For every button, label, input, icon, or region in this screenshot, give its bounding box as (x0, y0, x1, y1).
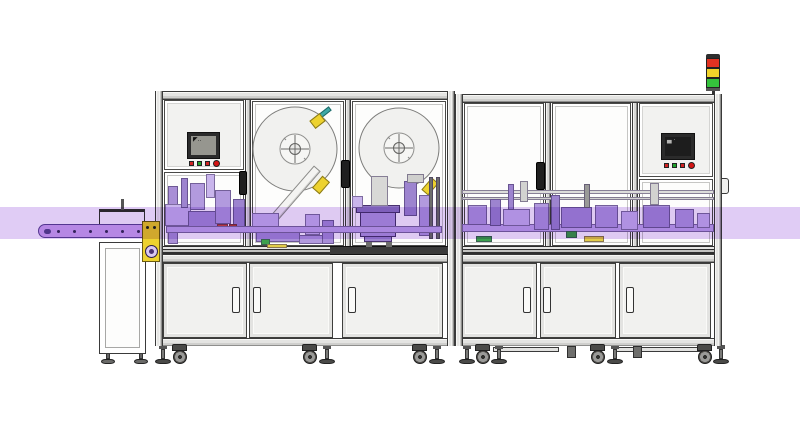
cabinet-door (540, 263, 616, 338)
left-hmi-buttons (189, 160, 220, 167)
right-cabinet-top-rail (458, 254, 719, 263)
conveyor-drive-bracket (142, 221, 160, 262)
bolt-dot (153, 226, 156, 229)
enclosure-door-handle (536, 162, 545, 190)
bolt-dot (146, 226, 149, 229)
caster-wheel (696, 344, 713, 366)
left-frame-post (447, 91, 455, 346)
leveling-foot (713, 345, 729, 366)
run-button (672, 163, 677, 168)
sub-frame-rail (616, 347, 702, 352)
belt-end-roller (44, 229, 51, 234)
cabinet-door-handle (626, 287, 634, 313)
right-frame-post (455, 94, 463, 346)
cabinet-door-handle (348, 287, 356, 313)
leveling-foot (459, 345, 475, 366)
support-stub (633, 346, 642, 358)
leveling-foot (607, 345, 623, 366)
stop-button (680, 163, 685, 168)
left-frame-top-rail (155, 91, 455, 100)
belt-dot (89, 230, 92, 233)
right-frame-post (714, 94, 722, 346)
signal-tower-green-light (706, 78, 720, 88)
caster-wheel (411, 344, 428, 366)
left-frame-post (155, 91, 163, 346)
start-button (189, 161, 194, 166)
belt-dot (121, 230, 124, 233)
enclosure-door-handle (239, 171, 247, 195)
conveyor-stand (99, 242, 146, 354)
right-frame-post (545, 103, 551, 254)
caster-wheel (301, 344, 318, 366)
cabinet-door (249, 263, 333, 338)
cabinet-door-handle (253, 287, 261, 313)
drive-gear-icon (145, 245, 158, 258)
leveling-foot (155, 345, 171, 366)
right-machine-bench (463, 246, 714, 254)
right-bay2-window (552, 103, 631, 246)
cabinet-door-handle (232, 287, 240, 313)
caster-wheel (171, 344, 188, 366)
bench-dark-section (330, 246, 448, 255)
right-hmi-screen: ▄ · (665, 137, 691, 156)
emergency-stop-button (213, 160, 220, 167)
rotary-table-foot (386, 242, 392, 247)
enclosure-door-handle (341, 160, 350, 188)
caster-wheel (589, 344, 606, 366)
leveling-foot (319, 345, 335, 366)
caster-wheel (474, 344, 491, 366)
right-frame-top-rail (455, 94, 722, 103)
support-stub (567, 346, 576, 358)
emergency-stop-button (688, 162, 695, 169)
belt-dot (137, 230, 140, 233)
cabinet-door (342, 263, 443, 338)
right-bay1-window (464, 103, 544, 246)
stop-button (205, 161, 210, 166)
right-bay3-window (639, 179, 713, 246)
start-button (664, 163, 669, 168)
belt-dot (57, 230, 60, 233)
conveyor-sensor-pin (121, 199, 124, 210)
run-button (197, 161, 202, 166)
leveling-foot (429, 345, 445, 366)
signal-tower-pole (712, 91, 715, 95)
signal-tower-red-light (706, 58, 720, 68)
left-hmi-panel: ◤‥ (187, 132, 220, 159)
signal-tower-yellow-light (706, 68, 720, 78)
right-hmi-panel: ▄ · (661, 133, 695, 160)
cabinet-door-handle (523, 287, 531, 313)
infeed-conveyor-belt (38, 224, 148, 238)
left-bay1-window (164, 172, 244, 246)
rotary-table-foot (366, 242, 372, 247)
left-cabinet-top-rail (158, 254, 449, 263)
label-reel (357, 106, 441, 190)
right-frame-post (632, 103, 638, 254)
cabinet-door-handle (543, 287, 551, 313)
conveyor-motor (99, 209, 145, 225)
right-hmi-buttons (664, 162, 695, 169)
rotary-table-body (360, 212, 396, 237)
belt-dot (105, 230, 108, 233)
left-hmi-screen: ◤‥ (191, 136, 216, 155)
machine-line-drawing: ◤‥ ▄ · (0, 0, 800, 438)
belt-dot (73, 230, 76, 233)
leveling-foot (491, 345, 507, 366)
